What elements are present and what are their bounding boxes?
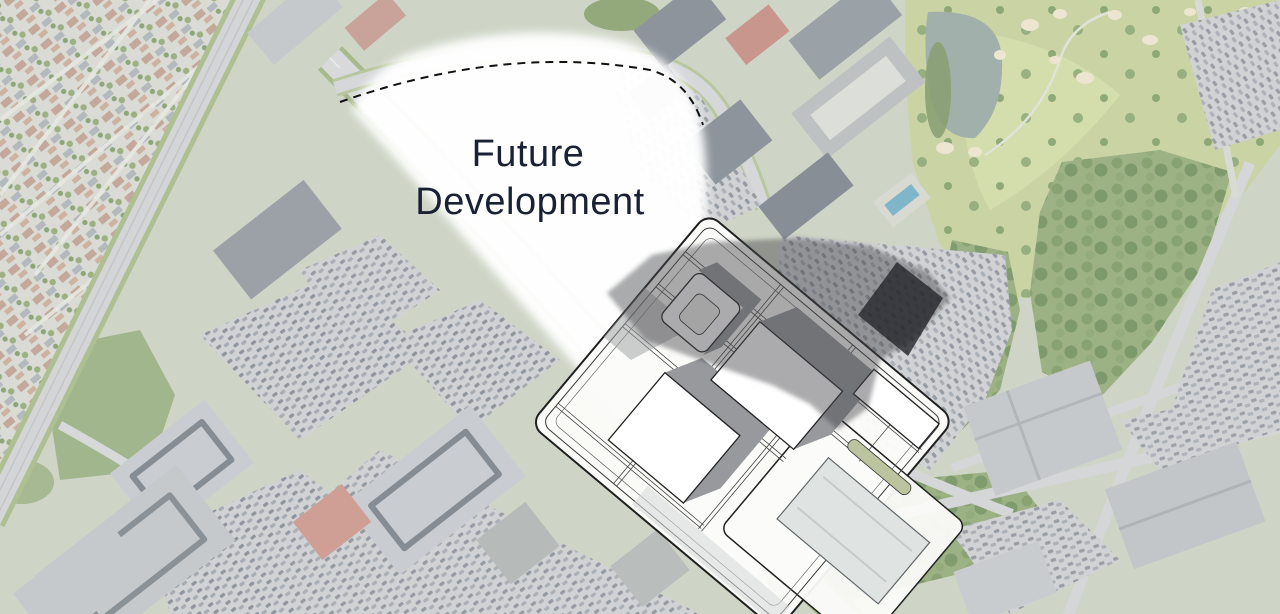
future-development-label-line2: Development [415,181,644,223]
future-development-label-line1: Future [472,133,585,175]
aerial-site-plan-map: Future Development [0,0,1280,614]
